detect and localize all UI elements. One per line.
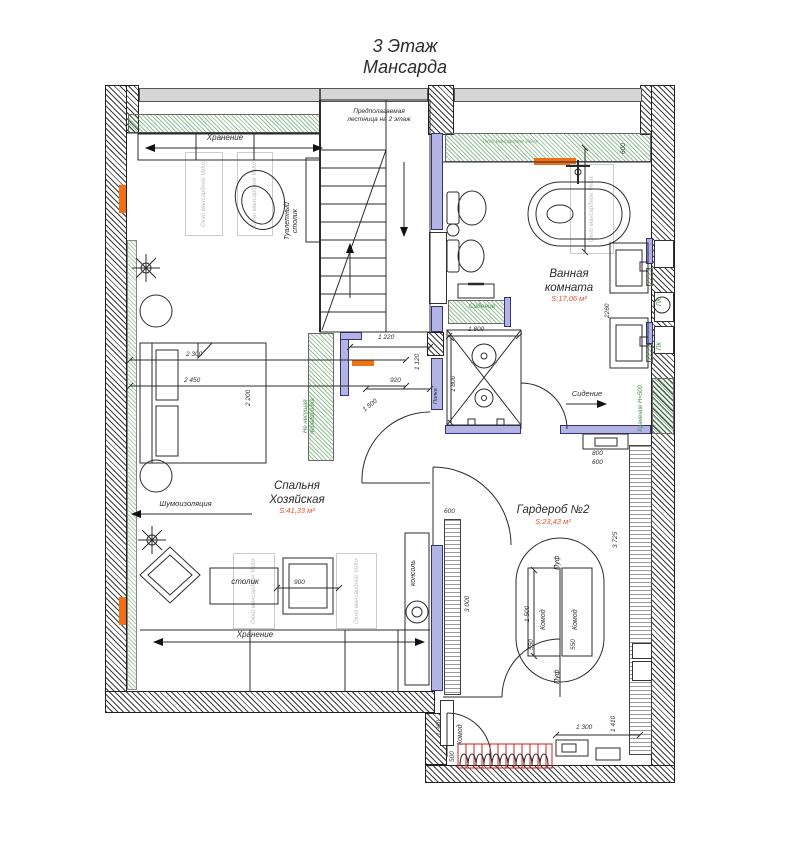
dim-bed-length: 2 200 (245, 390, 252, 406)
room-bathroom: Ванная комната S:17,06 м² (523, 268, 615, 304)
dim-bath-width: 600 (620, 143, 627, 154)
dim-wardrobe-length: 3 725 (612, 532, 619, 548)
dim-bed-width-2: 2 450 (184, 377, 200, 384)
dim-wardrobe-left: 3 000 (464, 596, 471, 612)
dim-island-width-2: 550 (570, 639, 577, 650)
vanity-mirror (228, 164, 292, 236)
dim-landing-opening: 920 (390, 377, 401, 384)
dim-shower-width: 1 800 (468, 326, 484, 333)
side-table-round-1 (140, 295, 172, 327)
dim-bottom-right: 1 410 (610, 716, 617, 732)
floorplan-canvas: Окно мансардное Velux Окно мансардное Ve… (0, 0, 798, 860)
drain (447, 224, 459, 236)
dim-landing-width: 1 220 (378, 334, 394, 341)
title-line2: Мансарда (305, 57, 505, 78)
dim-bottom-left: 1 360 (436, 720, 443, 736)
vanity-label: Туалетный столик (284, 202, 301, 240)
door-corridor (433, 467, 511, 545)
partition-label: Не несущая перегородка (303, 398, 317, 434)
chair (277, 558, 339, 614)
plant-1 (132, 254, 160, 282)
bathtub (528, 148, 630, 252)
dim-rack-depth: 600 (444, 508, 455, 515)
radiator (458, 744, 552, 768)
bench-seat (583, 434, 628, 449)
armchair (140, 547, 200, 603)
dim-island-width-1: 550 (528, 639, 535, 650)
soundproofing-label: Шумоизоляция (138, 500, 233, 509)
dim-island-length: 1 500 (524, 606, 531, 622)
dim-bench-2: 600 (592, 459, 603, 466)
room-bedroom: Спальня Хозяйская S:41,33 м² (251, 480, 343, 516)
dim-shower-depth: 1 800 (450, 376, 457, 392)
door-bathroom (521, 383, 567, 429)
washer (458, 284, 494, 298)
stairs (320, 100, 430, 332)
console-table (405, 533, 429, 685)
side-table-round-2 (140, 460, 172, 492)
storage-bottom-label: Хранение (210, 630, 300, 639)
shower (447, 330, 521, 425)
title-line1: 3 Этаж (305, 36, 505, 57)
shower-seat-label: Сидение (460, 303, 504, 311)
bench-seat-label: Сидение (566, 390, 608, 399)
bedroom-area: S:41,33 м² (251, 507, 343, 516)
bath-insulation-note: Окно мансардное Velux (468, 140, 552, 146)
console-label: консоль (410, 560, 418, 586)
floorplan-graphics (0, 0, 798, 860)
storage-top-label: Хранение (180, 133, 270, 142)
vanity-table (306, 158, 320, 242)
toilet (447, 191, 486, 225)
dresser-label-3: Комод (457, 724, 465, 745)
dim-vanity-run: 2260 (604, 304, 611, 318)
plant-2 (138, 526, 166, 554)
dim-bottom-small: 500 (449, 751, 456, 762)
shelf-label: Полка (433, 388, 439, 404)
pouf-bottom-label: Пуф (554, 670, 562, 684)
dim-chair: 900 (294, 579, 305, 586)
stairs-label: Предполагаемая лестница на 2 этаж (326, 108, 432, 123)
small-table-label: столик (222, 577, 268, 586)
bidet (447, 240, 484, 272)
bottom-bench (556, 735, 640, 760)
storage-h500-label: Хранение Н=500 (638, 385, 645, 432)
dresser-label-1: Комод (540, 609, 548, 630)
dim-bench-1: 800 (592, 450, 603, 457)
dim-bed-width-1: 2 300 (186, 351, 202, 358)
bathroom-area: S:17,06 м² (523, 295, 615, 304)
room-wardrobe: Гардероб №2 S:23,43 м² (505, 504, 601, 526)
door-bedroom (362, 412, 430, 483)
page-title: 3 Этаж Мансарда (305, 36, 505, 78)
pk-label-2: ПК (657, 342, 664, 350)
dim-bottom-bench: 1 300 (576, 724, 592, 731)
dim-landing-depth: 1 120 (414, 354, 421, 370)
dimension-lines (130, 347, 430, 389)
wardrobe-area: S:23,43 м² (505, 518, 601, 527)
pk-label-1: ПК (657, 298, 664, 306)
dresser-label-2: Комод (572, 609, 580, 630)
pouf-top-label: Пуф (554, 556, 562, 570)
